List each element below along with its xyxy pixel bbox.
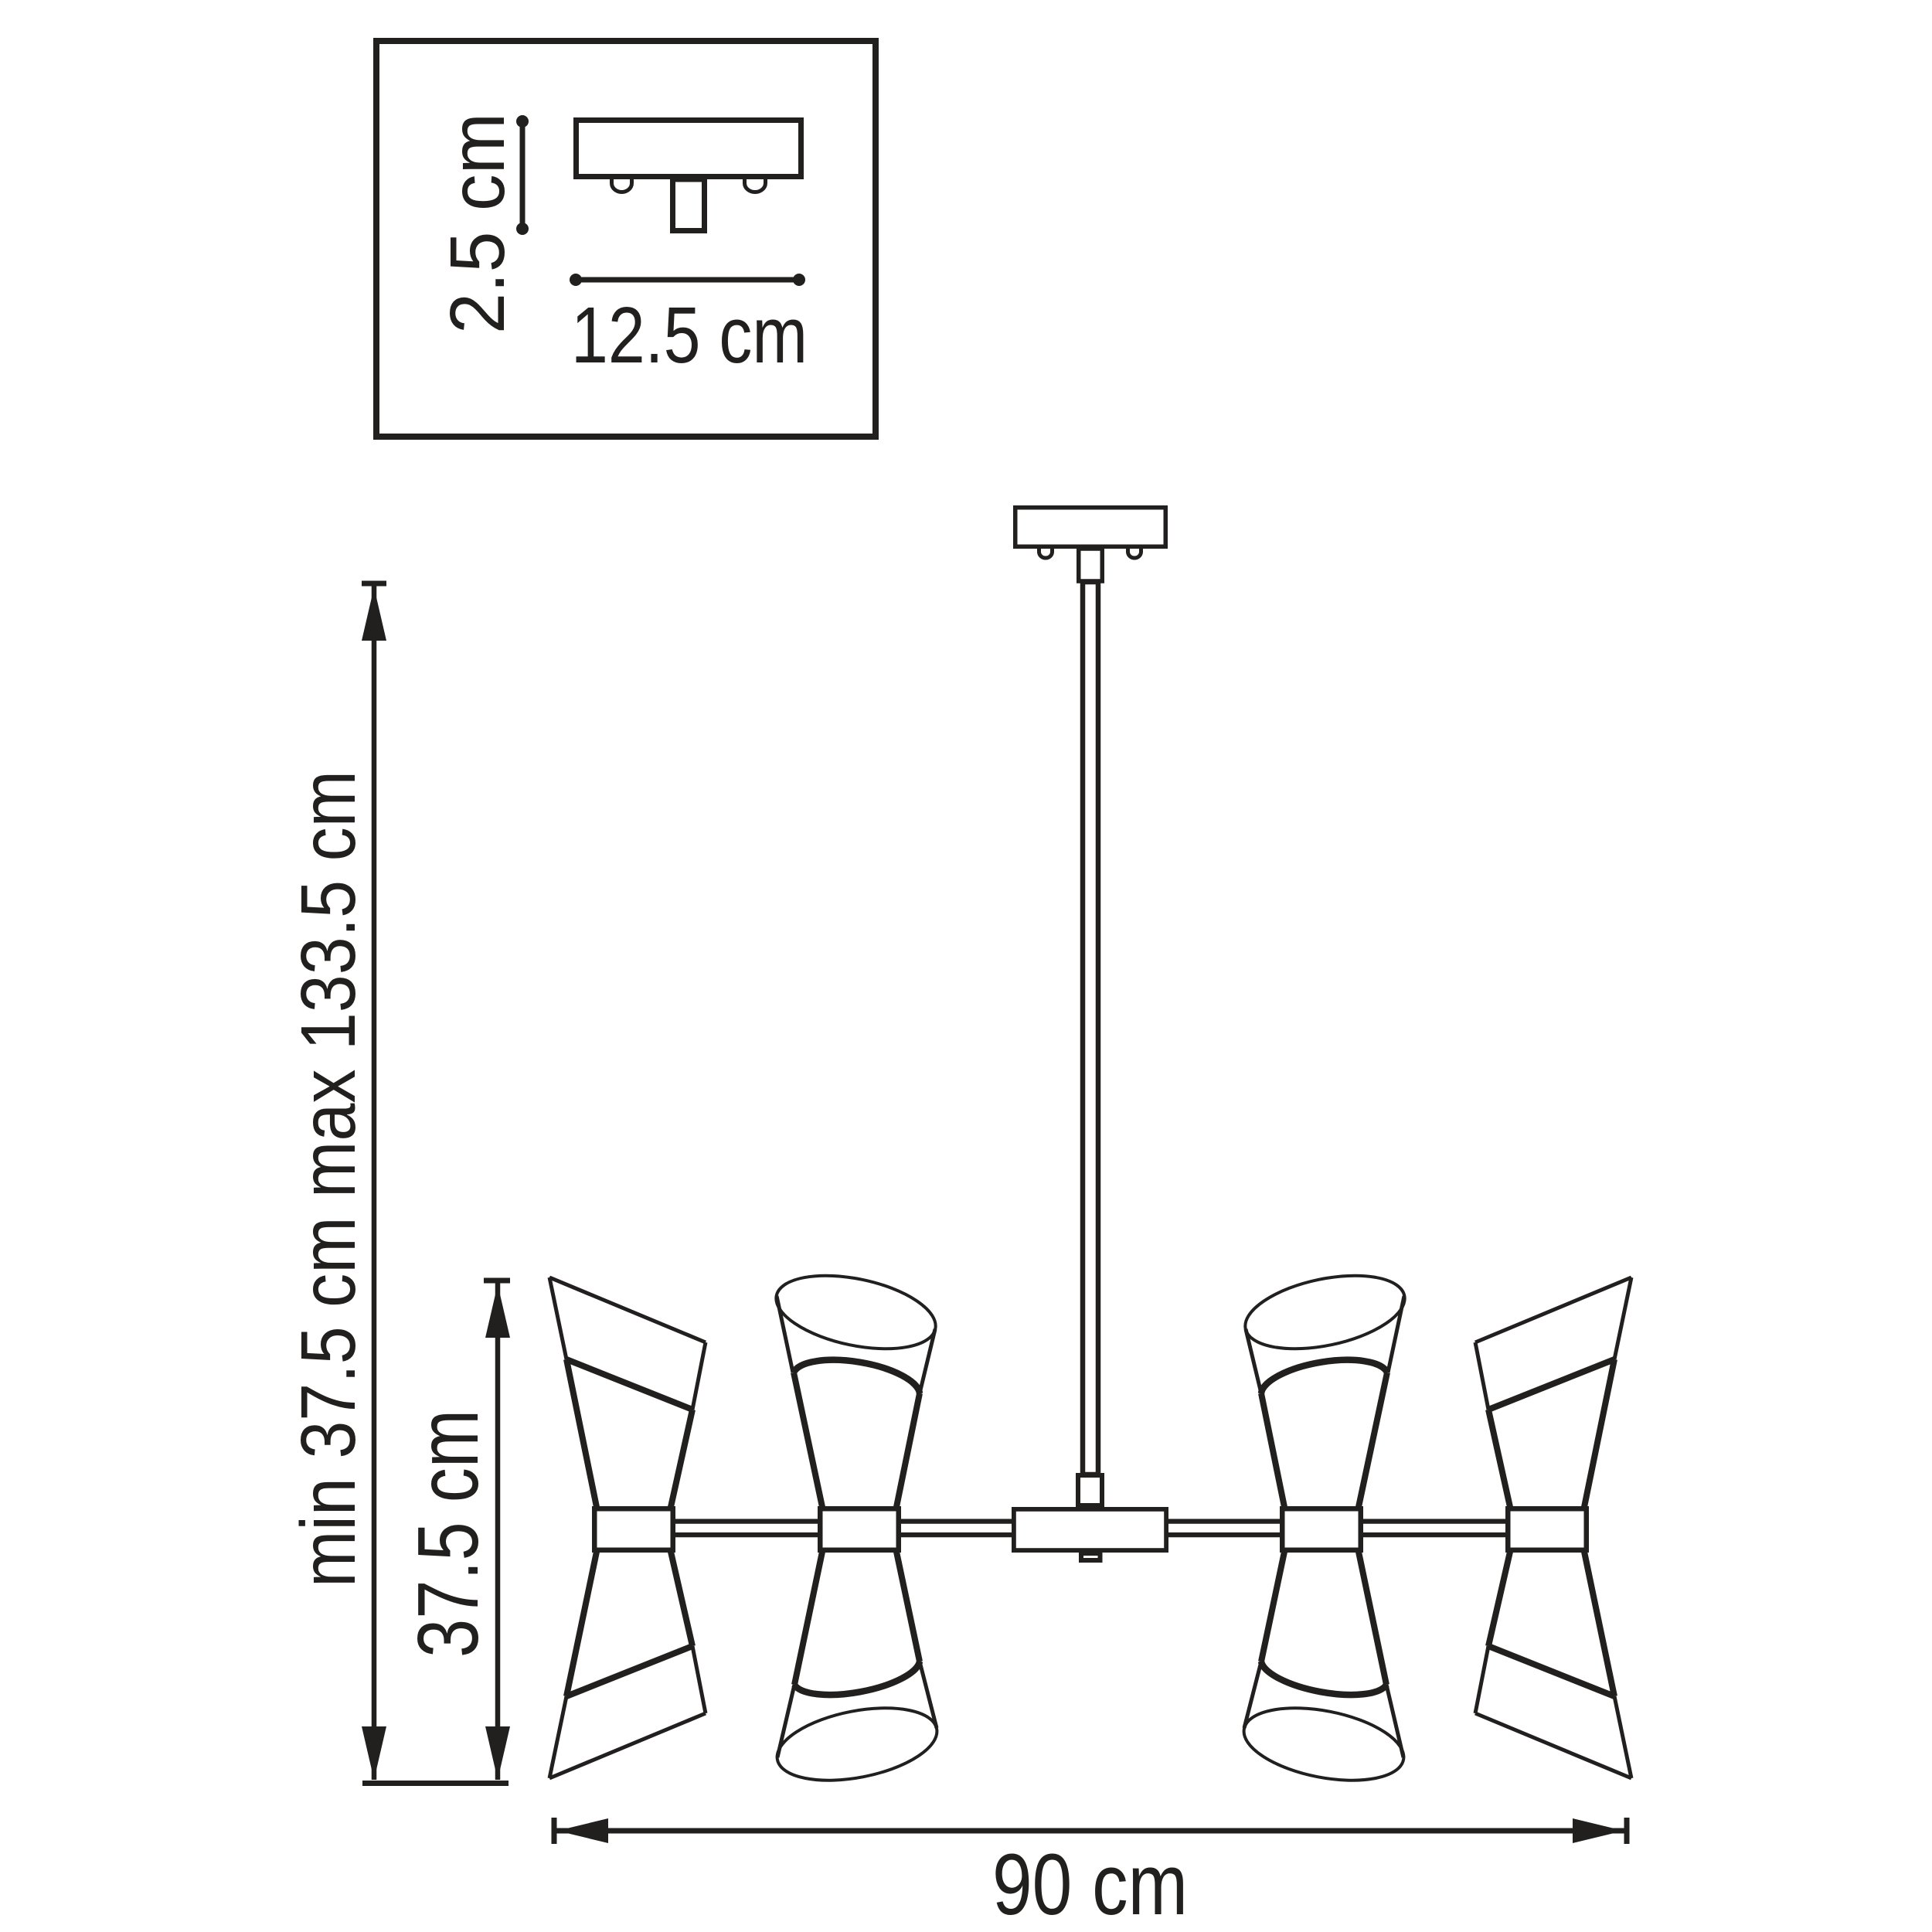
svg-text:37.5 cm: 37.5 cm [400, 1410, 496, 1658]
svg-text:2.5 cm: 2.5 cm [434, 113, 521, 334]
svg-text:90 cm: 90 cm [992, 1836, 1188, 1932]
svg-text:12.5 cm: 12.5 cm [571, 291, 808, 379]
svg-text:min 37.5 cm max 133.5 cm: min 37.5 cm max 133.5 cm [285, 770, 372, 1587]
